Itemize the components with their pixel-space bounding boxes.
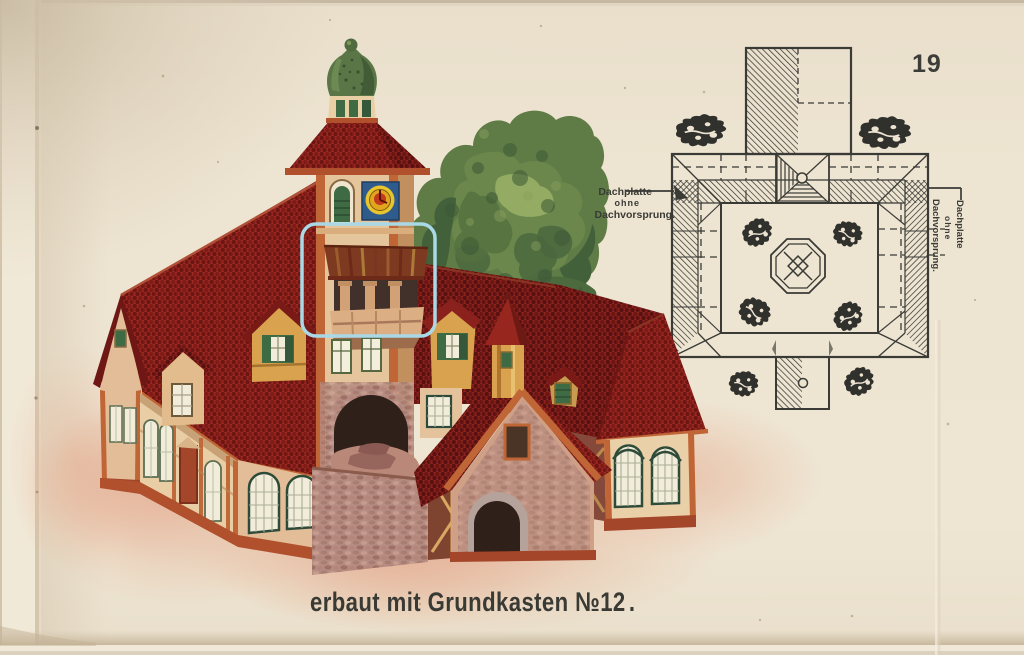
svg-text:Dachvorsprung.: Dachvorsprung. [930, 199, 941, 272]
svg-text:Dachplatte: Dachplatte [954, 200, 965, 249]
svg-text:Dachplatte: Dachplatte [598, 186, 652, 198]
svg-text:erbaut mit Grundkasten №12.: erbaut mit Grundkasten №12. [310, 588, 635, 618]
svg-text:ohne: ohne [615, 198, 641, 208]
svg-text:ohne: ohne [943, 216, 953, 240]
svg-text:Dachvorsprung.: Dachvorsprung. [594, 209, 675, 221]
svg-text:19: 19 [912, 50, 942, 78]
